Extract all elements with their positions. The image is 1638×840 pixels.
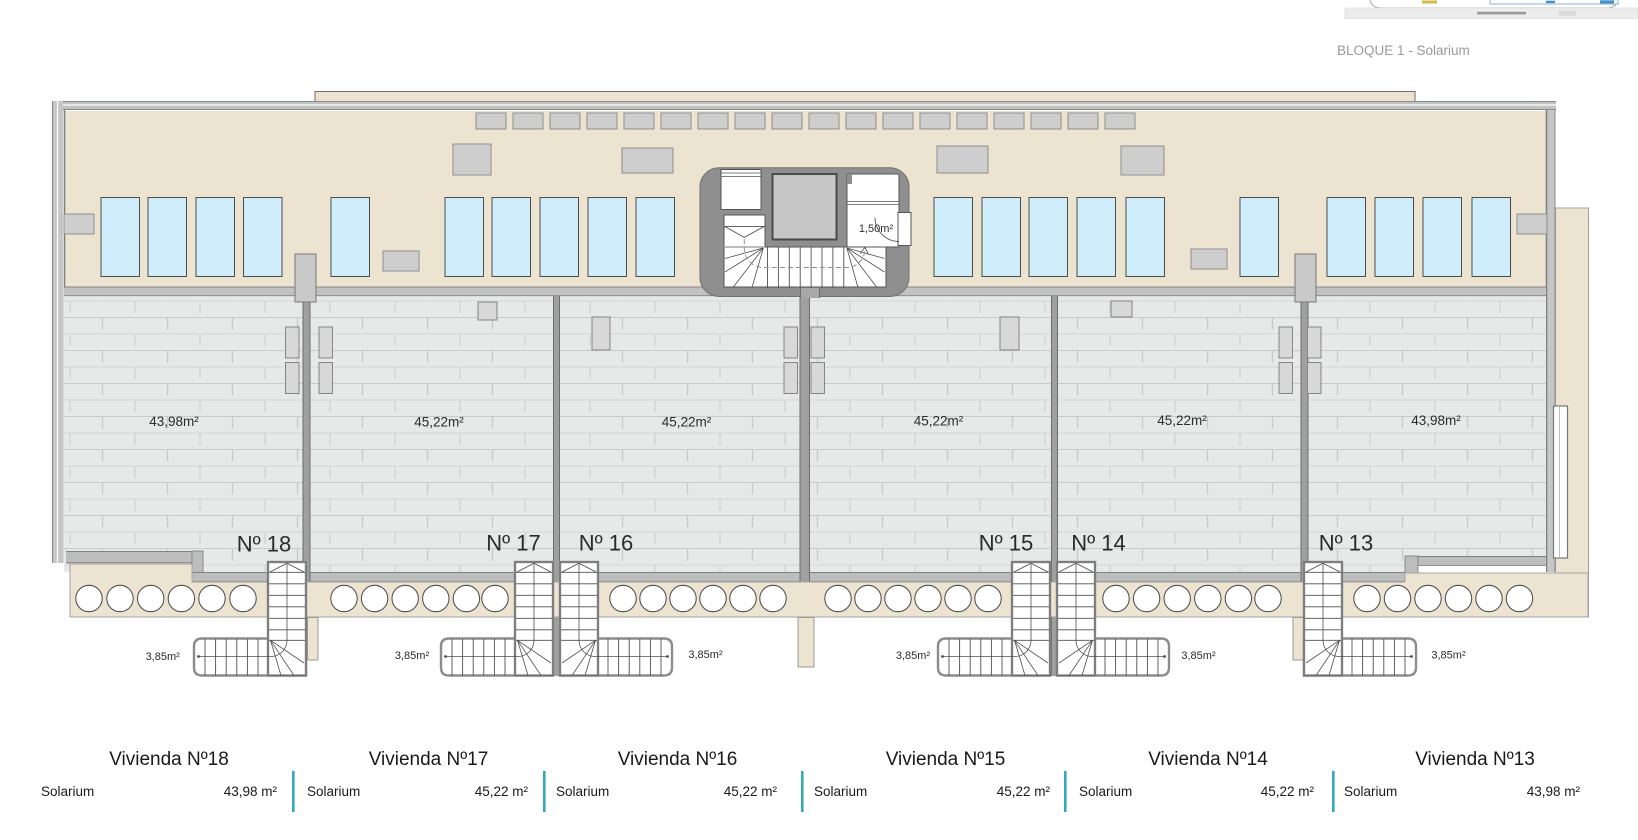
svg-text:Vivienda Nº14: Vivienda Nº14 <box>1148 749 1268 770</box>
svg-text:Nº 18: Nº 18 <box>237 532 292 557</box>
svg-text:Vivienda Nº17: Vivienda Nº17 <box>369 749 489 770</box>
svg-text:Nº 15: Nº 15 <box>979 531 1034 556</box>
svg-text:3,85m²: 3,85m² <box>146 651 181 663</box>
svg-text:Solarium: Solarium <box>307 784 360 799</box>
svg-text:Solarium: Solarium <box>1344 784 1397 799</box>
svg-text:Solarium: Solarium <box>814 784 867 799</box>
svg-text:3,85m²: 3,85m² <box>1181 650 1216 662</box>
svg-text:3,85m²: 3,85m² <box>1431 650 1466 662</box>
svg-text:45,22 m²: 45,22 m² <box>724 784 778 799</box>
svg-text:Vivienda Nº15: Vivienda Nº15 <box>886 749 1006 770</box>
svg-text:43,98m²: 43,98m² <box>1411 413 1461 428</box>
svg-text:Solarium: Solarium <box>1079 784 1132 799</box>
svg-text:3,85m²: 3,85m² <box>395 650 430 662</box>
svg-text:45,22m²: 45,22m² <box>414 415 464 430</box>
svg-text:3,85m²: 3,85m² <box>688 649 723 661</box>
svg-text:Nº 16: Nº 16 <box>579 531 634 556</box>
svg-text:45,22m²: 45,22m² <box>662 415 712 430</box>
svg-text:Nº 14: Nº 14 <box>1071 531 1126 556</box>
svg-text:3,85m²: 3,85m² <box>896 650 931 662</box>
svg-text:Solarium: Solarium <box>556 784 609 799</box>
svg-text:45,22m²: 45,22m² <box>914 414 964 429</box>
svg-text:43,98 m²: 43,98 m² <box>1527 784 1581 799</box>
svg-text:Vivienda Nº13: Vivienda Nº13 <box>1415 749 1535 770</box>
svg-text:Nº 13: Nº 13 <box>1319 531 1374 556</box>
svg-text:Nº 17: Nº 17 <box>486 531 541 556</box>
svg-text:43,98m²: 43,98m² <box>149 414 199 429</box>
svg-text:Solarium: Solarium <box>41 784 94 799</box>
svg-text:Vivienda Nº18: Vivienda Nº18 <box>109 749 229 770</box>
svg-text:45,22 m²: 45,22 m² <box>475 784 529 799</box>
svg-text:1,50m²: 1,50m² <box>859 223 894 235</box>
svg-text:BLOQUE 1 - Solarium: BLOQUE 1 - Solarium <box>1337 43 1470 58</box>
svg-text:Vivienda Nº16: Vivienda Nº16 <box>618 749 738 770</box>
svg-text:45,22m²: 45,22m² <box>1157 413 1207 428</box>
svg-text:45,22 m²: 45,22 m² <box>1261 784 1315 799</box>
svg-text:45,22 m²: 45,22 m² <box>997 784 1051 799</box>
svg-text:43,98 m²: 43,98 m² <box>224 784 278 799</box>
